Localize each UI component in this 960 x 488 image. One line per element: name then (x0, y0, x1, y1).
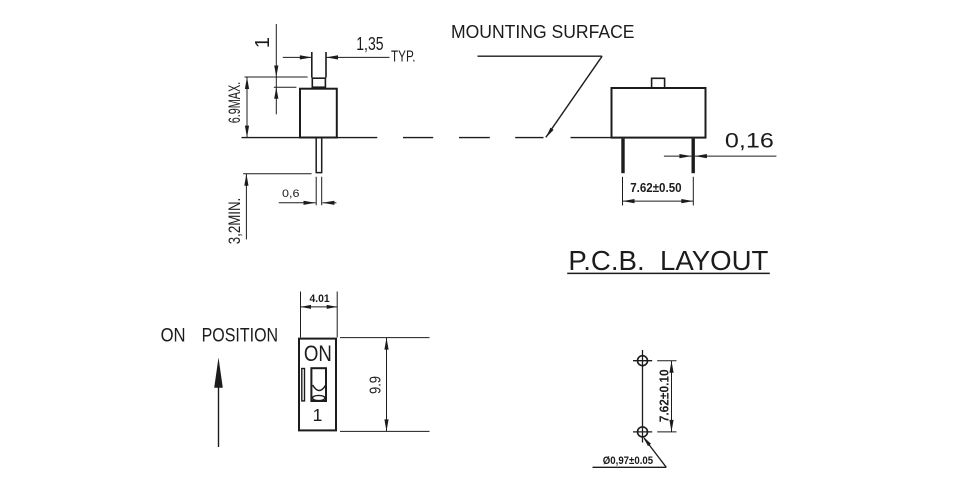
svg-text:ON: ON (304, 341, 332, 366)
svg-text:9.9: 9.9 (368, 376, 385, 394)
svg-text:7.62±0.10: 7.62±0.10 (657, 369, 672, 422)
svg-text:MOUNTING SURFACE: MOUNTING SURFACE (451, 21, 635, 42)
svg-text:1: 1 (252, 37, 274, 48)
svg-text:6.9MAX.: 6.9MAX. (225, 82, 244, 124)
svg-text:P.C.B. LAYOUT: P.C.B. LAYOUT (568, 245, 768, 276)
svg-text:POSITION: POSITION (202, 326, 279, 347)
svg-text:Ø0,97±0.05: Ø0,97±0.05 (603, 455, 653, 467)
svg-text:0,16: 0,16 (725, 130, 774, 153)
svg-text:1: 1 (313, 405, 323, 425)
svg-text:4.01: 4.01 (310, 293, 330, 305)
svg-text:1,35: 1,35 (356, 33, 383, 54)
svg-text:0,6: 0,6 (282, 188, 300, 200)
svg-text:TYP.: TYP. (391, 49, 416, 66)
svg-text:7.62±0.50: 7.62±0.50 (630, 180, 681, 195)
svg-text:ON: ON (161, 326, 186, 347)
svg-text:3,2MIN.: 3,2MIN. (225, 198, 244, 245)
